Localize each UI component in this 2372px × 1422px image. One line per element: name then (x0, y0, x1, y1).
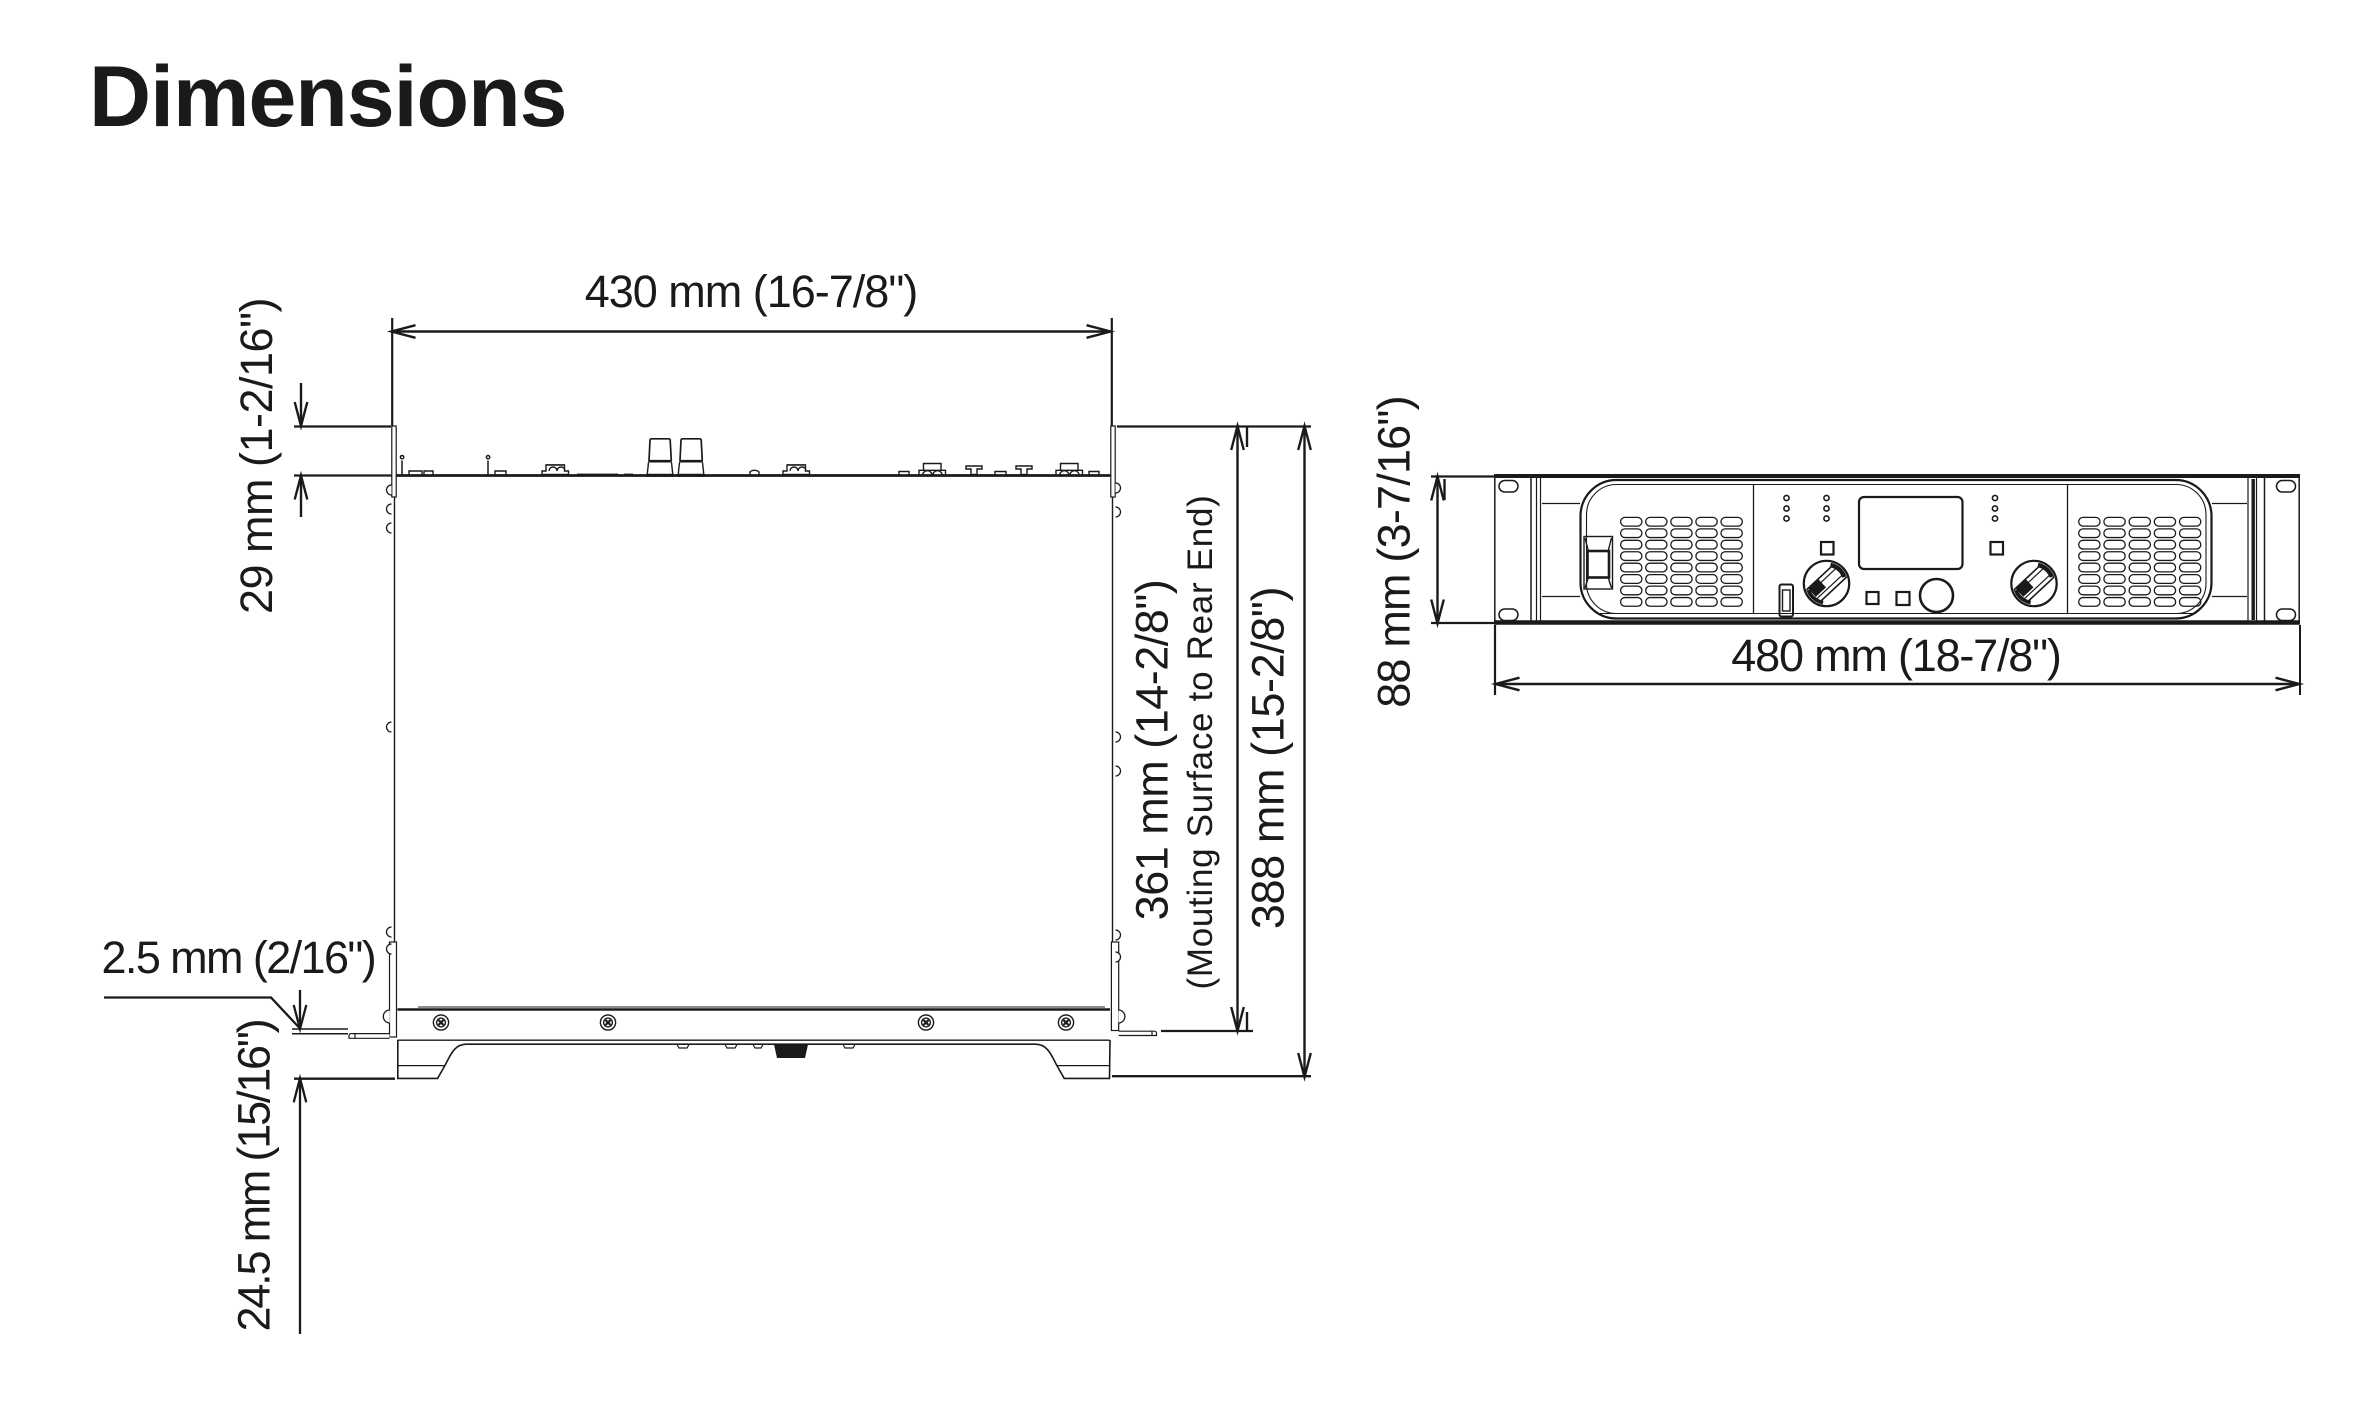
svg-text:88 mm (3-7/16"): 88 mm (3-7/16") (1369, 396, 1420, 708)
svg-text:388 mm (15-2/8"): 388 mm (15-2/8") (1243, 587, 1294, 929)
svg-text:480 mm (18-7/8"): 480 mm (18-7/8") (1731, 630, 2060, 681)
svg-text:Dimensions: Dimensions (89, 49, 566, 145)
svg-text:(Mouting Surface to Rear End): (Mouting Surface to Rear End) (1181, 495, 1220, 990)
svg-text:361 mm (14-2/8"): 361 mm (14-2/8") (1127, 580, 1178, 921)
svg-text:430 mm (16-7/8"): 430 mm (16-7/8") (585, 266, 918, 317)
svg-text:29 mm (1-2/16"): 29 mm (1-2/16") (231, 298, 282, 614)
svg-text:2.5 mm (2/16"): 2.5 mm (2/16") (102, 932, 376, 983)
svg-text:24.5 mm (15/16"): 24.5 mm (15/16") (229, 1020, 280, 1331)
